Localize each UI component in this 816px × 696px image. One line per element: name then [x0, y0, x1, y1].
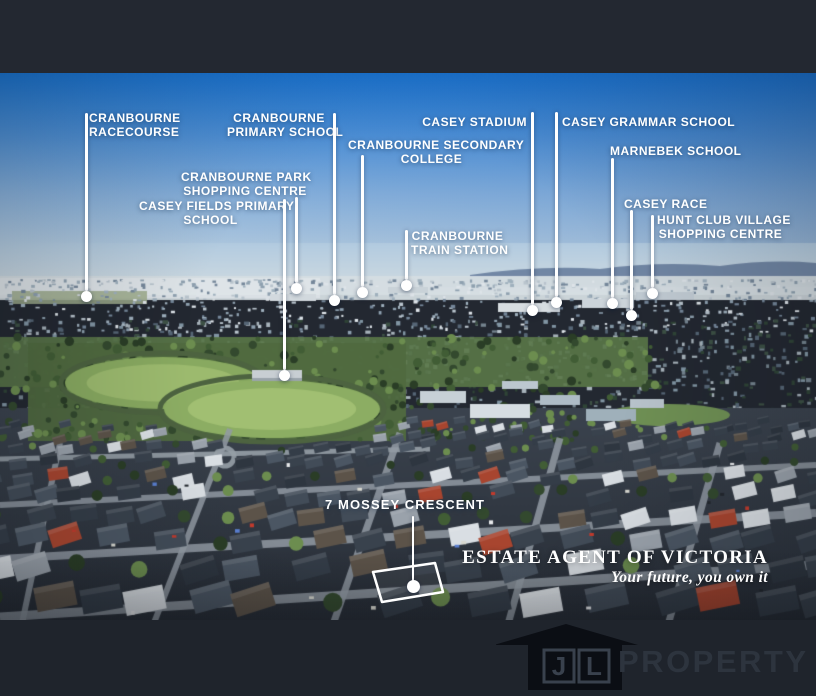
location-dot	[527, 305, 538, 316]
leader-line	[405, 230, 408, 280]
callout-label: HUNT CLUB VILLAGESHOPPING CENTRE	[657, 213, 784, 241]
agency-tagline: Your future, you own it	[611, 569, 768, 587]
leader-line	[85, 113, 88, 291]
leader-line	[630, 210, 633, 310]
leader-line	[283, 199, 286, 370]
property-address-label: 7 MOSSEY CRESCENT	[325, 498, 478, 512]
callout-label: CASEY FIELDS PRIMARYSCHOOL	[139, 199, 282, 227]
leader-line	[295, 197, 298, 283]
callout-label: CRANBOURNETRAIN STATION	[411, 229, 504, 257]
leader-line	[651, 215, 654, 288]
letterbox-top	[0, 0, 816, 73]
location-dot	[357, 287, 368, 298]
leader-line	[555, 112, 558, 297]
annotated-aerial-image: CRANBOURNERACECOURSE CRANBOURNEPRIMARY S…	[0, 0, 816, 696]
leader-line	[333, 113, 336, 295]
logo-wordmark: PROPERTY	[618, 644, 809, 680]
location-dot	[329, 295, 340, 306]
leader-line	[611, 158, 614, 298]
leader-line	[361, 155, 364, 287]
location-dot	[279, 370, 290, 381]
callout-label: CASEY RACE	[624, 197, 707, 211]
callout-label: CRANBOURNERACECOURSE	[89, 111, 179, 139]
monogram-l: L	[586, 651, 602, 681]
callout-label: MARNEBEK SCHOOL	[610, 144, 742, 158]
leader-line	[531, 112, 534, 305]
callout-label: CRANBOURNEPRIMARY SCHOOL	[227, 111, 331, 139]
jl-property-logo: J L PROPERTY	[496, 624, 816, 694]
agency-name: ESTATE AGENT OF VICTORIA	[462, 547, 768, 569]
property-boundary-outline	[360, 555, 460, 615]
callout-label: CRANBOURNE PARKSHOPPING CENTRE	[181, 170, 309, 198]
location-dot	[291, 283, 302, 294]
callout-label: CASEY STADIUM	[422, 115, 527, 129]
monogram-j: J	[552, 651, 566, 681]
location-dot	[401, 280, 412, 291]
callout-label: CRANBOURNE SECONDARYCOLLEGE	[348, 138, 515, 166]
location-dot	[626, 310, 637, 321]
location-dot	[551, 297, 562, 308]
location-dot	[607, 298, 618, 309]
location-dot	[647, 288, 658, 299]
callout-label: CASEY GRAMMAR SCHOOL	[562, 115, 735, 129]
location-dot	[81, 291, 92, 302]
